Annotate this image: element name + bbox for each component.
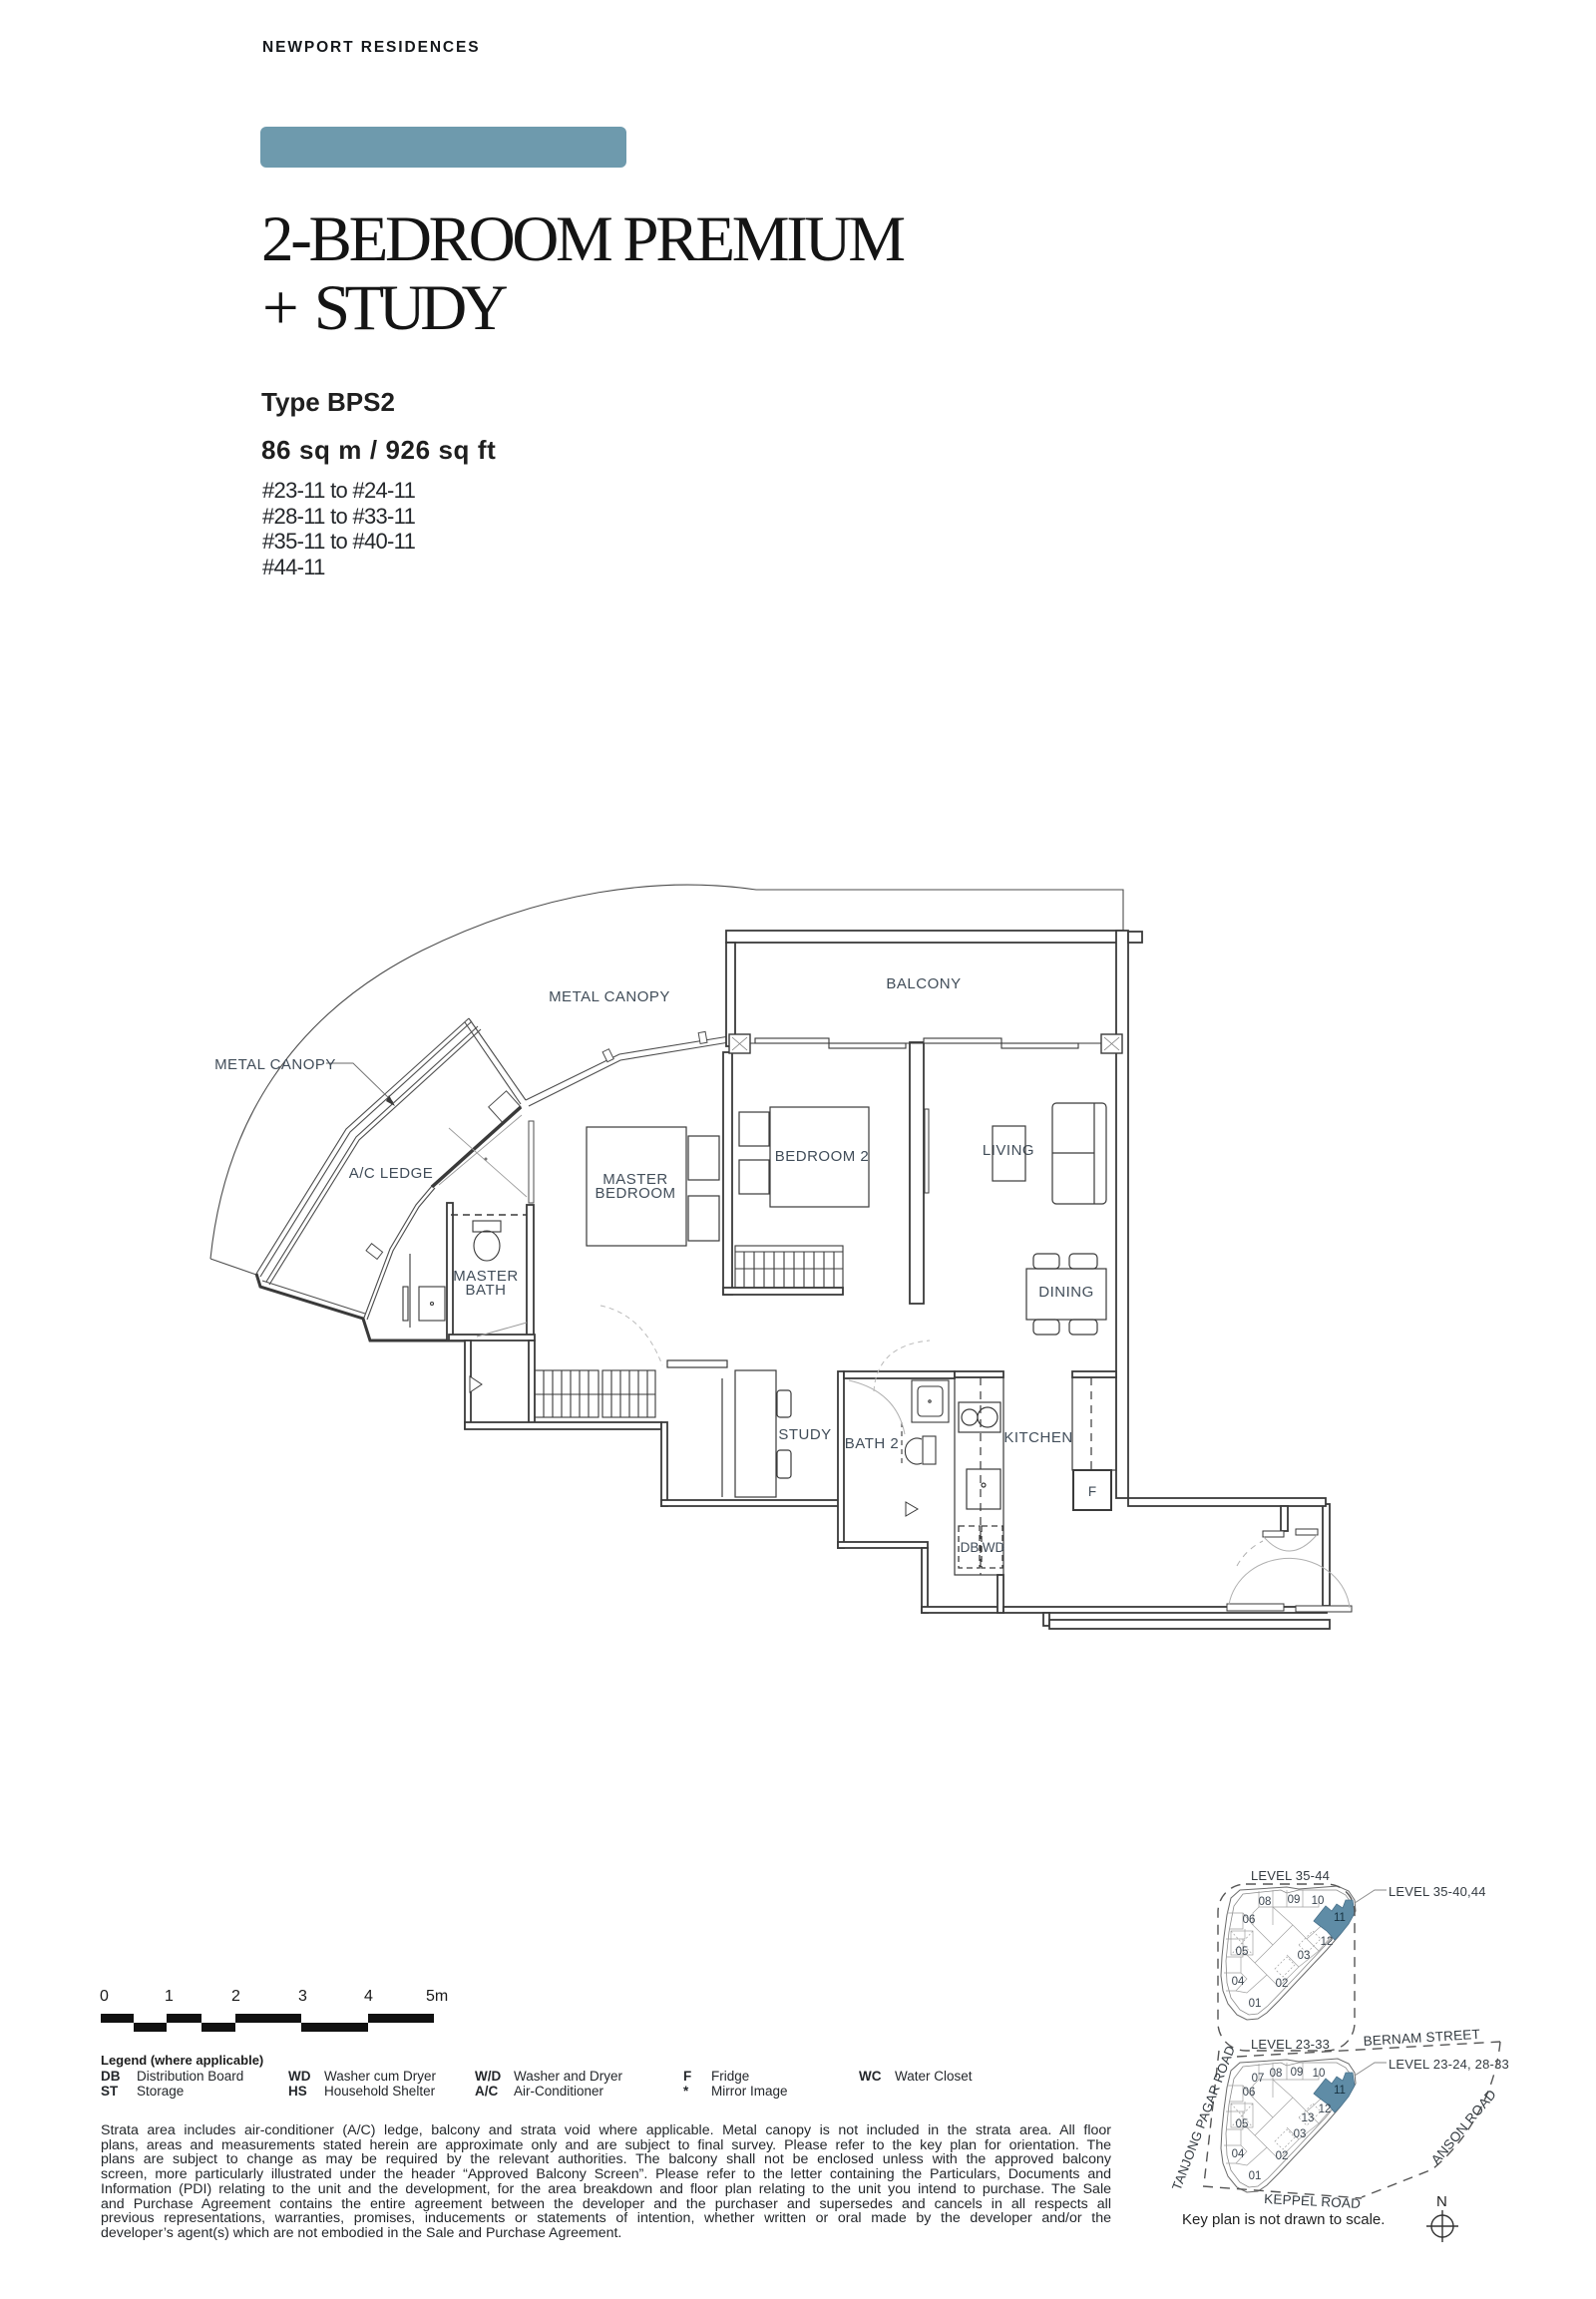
svg-text:ANSON ROAD: ANSON ROAD — [1428, 2087, 1499, 2167]
svg-text:10: 10 — [1312, 1895, 1325, 1907]
svg-text:06: 06 — [1243, 2087, 1256, 2099]
svg-text:12: 12 — [1321, 1936, 1334, 1948]
svg-text:WD: WD — [983, 1540, 1005, 1555]
svg-text:11: 11 — [1334, 2085, 1346, 2097]
svg-text:LIVING: LIVING — [983, 1142, 1034, 1159]
svg-text:03: 03 — [1298, 1950, 1311, 1962]
svg-text:A/C LEDGE: A/C LEDGE — [349, 1165, 434, 1182]
svg-text:DINING: DINING — [1038, 1284, 1094, 1301]
svg-text:KEPPEL ROAD: KEPPEL ROAD — [1264, 2191, 1362, 2211]
svg-text:06: 06 — [1243, 1914, 1256, 1926]
svg-text:01: 01 — [1249, 1998, 1262, 2010]
svg-text:Key plan is not drawn to scale: Key plan is not drawn to scale. — [1182, 2211, 1385, 2228]
svg-text:BEDROOM 2: BEDROOM 2 — [775, 1148, 870, 1165]
svg-text:05: 05 — [1236, 2118, 1249, 2130]
svg-text:BERNAM STREET: BERNAM STREET — [1363, 2027, 1480, 2049]
svg-text:07: 07 — [1252, 2073, 1265, 2085]
svg-text:11: 11 — [1334, 1912, 1346, 1924]
svg-text:BALCONY: BALCONY — [886, 975, 961, 992]
svg-text:09: 09 — [1291, 2067, 1304, 2079]
svg-text:09: 09 — [1288, 1894, 1301, 1906]
svg-text:KITCHEN: KITCHEN — [1003, 1429, 1072, 1446]
svg-text:01: 01 — [1249, 2170, 1262, 2182]
svg-text:05: 05 — [1236, 1946, 1249, 1958]
svg-text:BEDROOM: BEDROOM — [595, 1185, 675, 1202]
svg-text:STUDY: STUDY — [778, 1426, 831, 1443]
svg-text:08: 08 — [1270, 2068, 1283, 2080]
svg-text:BATH: BATH — [466, 1282, 507, 1299]
svg-text:LEVEL 23-33: LEVEL 23-33 — [1251, 2037, 1330, 2052]
svg-text:METAL CANOPY: METAL CANOPY — [549, 988, 670, 1005]
svg-text:10: 10 — [1313, 2068, 1326, 2080]
svg-text:04: 04 — [1232, 1976, 1245, 1988]
svg-text:13: 13 — [1302, 2112, 1315, 2124]
svg-text:BATH 2: BATH 2 — [845, 1435, 899, 1452]
svg-text:DB: DB — [961, 1540, 980, 1555]
svg-text:08: 08 — [1259, 1896, 1272, 1908]
svg-text:LEVEL 23-24, 28-33: LEVEL 23-24, 28-33 — [1389, 2057, 1509, 2072]
svg-text:12: 12 — [1319, 2104, 1332, 2115]
svg-text:METAL CANOPY: METAL CANOPY — [214, 1056, 336, 1073]
svg-text:F: F — [1088, 1484, 1096, 1499]
svg-text:LEVEL 35-40,44: LEVEL 35-40,44 — [1389, 1884, 1486, 1899]
svg-text:02: 02 — [1276, 2150, 1289, 2162]
svg-text:N: N — [1436, 2193, 1447, 2210]
svg-text:02: 02 — [1276, 1978, 1289, 1990]
svg-text:04: 04 — [1232, 2148, 1245, 2160]
svg-text:LEVEL 35-44: LEVEL 35-44 — [1251, 1868, 1330, 1883]
svg-text:03: 03 — [1294, 2128, 1307, 2140]
